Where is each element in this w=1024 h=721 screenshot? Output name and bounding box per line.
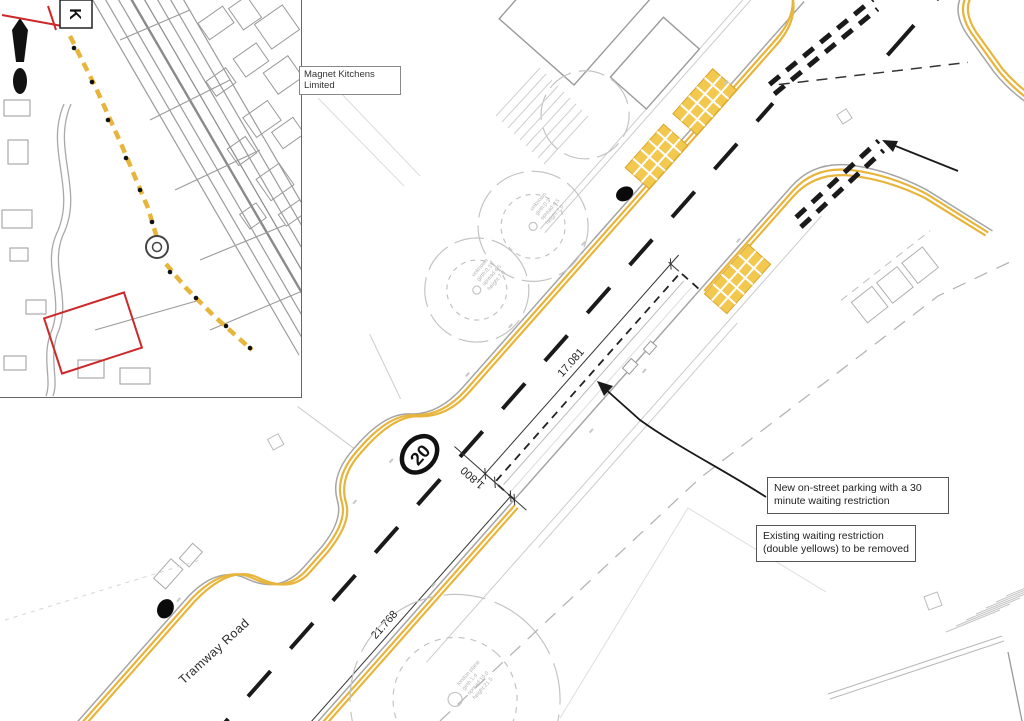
dim-bay-length-text: 17.081	[556, 346, 587, 379]
lane-taper-dash	[779, 0, 968, 169]
callout-new-parking: New on-street parking with a 30 minute w…	[767, 477, 949, 514]
embankment-hatching	[496, 68, 588, 164]
faint-steps-lines	[318, 90, 420, 186]
bin-store-squares	[841, 231, 951, 327]
hatched-bay-1	[625, 124, 687, 189]
north-box-glyph: K	[66, 8, 83, 20]
north-box: K	[60, 0, 92, 28]
yellow-hatched-bays	[597, 69, 842, 314]
dim-bay-width-text: 1.800	[459, 464, 488, 491]
bottom-right-site-features	[828, 574, 1024, 721]
traffic-plan-canvas: 17.081 1.800 21.768 20	[0, 0, 1024, 721]
callout-existing-removed: Existing waiting restriction (double yel…	[756, 525, 916, 562]
give-way-markings	[713, 0, 954, 234]
junction-lane-dashes	[887, 0, 986, 55]
road-name-label: Tramway Road	[176, 616, 252, 687]
inset-location-map: K	[0, 0, 390, 398]
speed-roundel-20: 20	[395, 429, 445, 479]
inset-roundabout	[146, 236, 168, 258]
business-name-label: Magnet Kitchens Limited	[299, 66, 401, 95]
building-outlines	[484, 0, 795, 131]
dim-kerb-run-text: 21.768	[369, 609, 400, 642]
plan-drawing: 17.081 1.800 21.768 20	[0, 0, 1024, 721]
footway-back-lines	[227, 0, 926, 667]
